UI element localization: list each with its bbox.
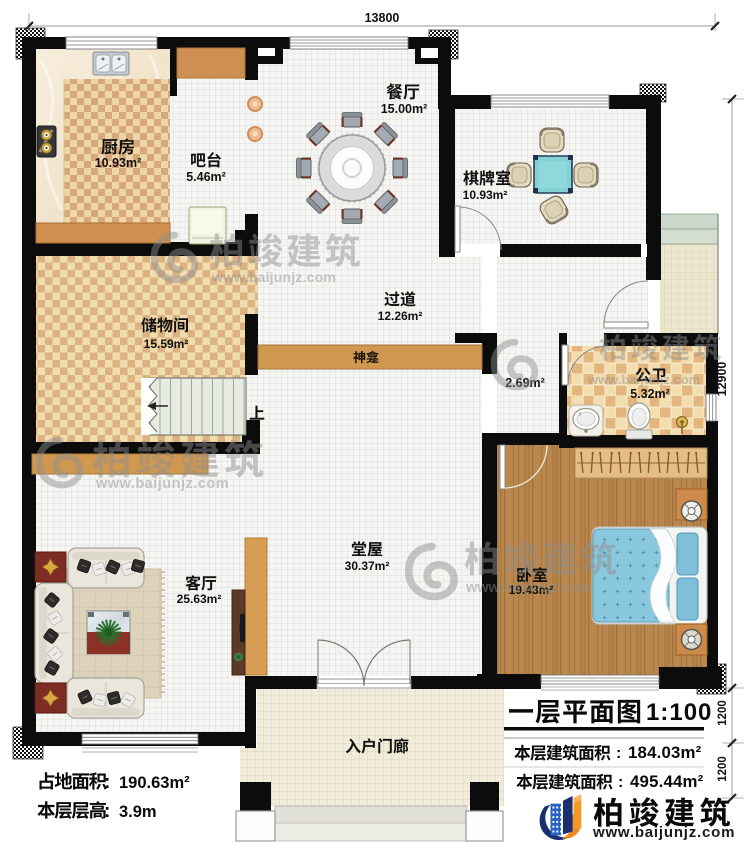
svg-text:www.baijunjz.com: www.baijunjz.com	[465, 580, 591, 596]
svg-text::: :	[104, 772, 110, 793]
svg-text:15.00m²: 15.00m²	[381, 102, 428, 116]
svg-text:www.baijunjz.com: www.baijunjz.com	[211, 269, 336, 285]
svg-text:10.93m²: 10.93m²	[95, 156, 142, 170]
svg-text:www.baijunjz.com: www.baijunjz.com	[592, 824, 735, 841]
svg-text:5.46m²: 5.46m²	[186, 170, 226, 184]
svg-text::: :	[616, 745, 621, 762]
svg-text:12.26m²: 12.26m²	[378, 309, 423, 323]
svg-text:15.59m²: 15.59m²	[144, 337, 189, 351]
svg-text:30.37m²: 30.37m²	[345, 559, 390, 573]
svg-text:25.63m²: 25.63m²	[177, 592, 222, 606]
svg-text:10.93m²: 10.93m²	[463, 188, 508, 202]
svg-text:184.03m²: 184.03m²	[628, 743, 702, 762]
svg-text:5.32m²: 5.32m²	[630, 387, 670, 401]
svg-text::: :	[618, 774, 623, 791]
svg-text:3.9m: 3.9m	[119, 803, 157, 821]
svg-text:495.44m²: 495.44m²	[630, 772, 704, 791]
svg-text::: :	[104, 801, 110, 822]
svg-text:www.baijunjz.com: www.baijunjz.com	[95, 476, 229, 492]
svg-text:190.63m²: 190.63m²	[119, 774, 190, 792]
svg-text:1:100: 1:100	[646, 699, 712, 726]
svg-text:1200: 1200	[717, 756, 729, 782]
svg-text:13800: 13800	[365, 11, 400, 25]
svg-text:1200: 1200	[717, 700, 729, 726]
svg-text:12900: 12900	[715, 362, 729, 397]
svg-text:www.baijunjz.com: www.baijunjz.com	[587, 372, 700, 387]
